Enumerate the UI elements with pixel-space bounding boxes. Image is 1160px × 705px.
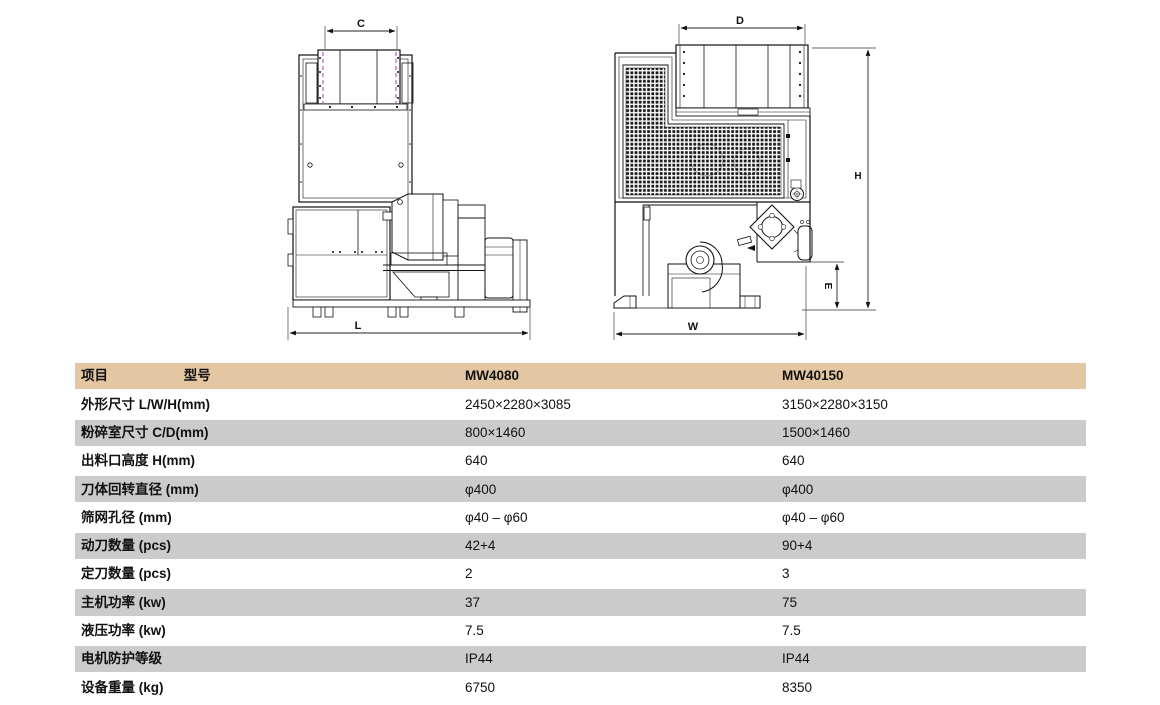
lower-cabinet [288,207,390,300]
row-value-mw4080: 6750 [465,681,782,695]
dimension-h: H [812,48,876,308]
table-row: 动刀数量 (pcs) 42+4 90+4 [75,533,1086,559]
dim-label-d: D [736,15,744,27]
right-strip [786,120,812,260]
hopper [304,50,413,110]
dimension-c: C [325,18,397,49]
front-view-drawing: C [283,14,533,344]
row-label: 外形尺寸 L/W/H(mm) [75,398,465,412]
table-row: 设备重量 (kg) 6750 8350 [75,674,1086,700]
dim-label-c: C [357,18,365,30]
row-value-mw40150: φ400 [782,483,1086,497]
row-label: 刀体回转直径 (mm) [75,483,465,497]
row-value-mw40150: IP44 [782,652,1086,666]
table-row: 定刀数量 (pcs) 2 3 [75,561,1086,587]
row-value-mw4080: IP44 [465,652,782,666]
table-header-row: 项目 型号 MW4080 MW40150 [75,363,1086,389]
row-label: 液压功率 (kw) [75,624,465,638]
datasheet-page: C [0,0,1160,705]
row-value-mw4080: 2 [465,567,782,581]
row-value-mw40150: 640 [782,454,1086,468]
row-value-mw40150: 1500×1460 [782,426,1086,440]
row-value-mw40150: 90+4 [782,539,1086,553]
table-row: 粉碎室尺寸 C/D(mm) 800×1460 1500×1460 [75,420,1086,446]
table-row: 液压功率 (kw) 7.5 7.5 [75,618,1086,644]
dimension-d: D [679,15,805,44]
row-value-mw4080: 42+4 [465,539,782,553]
row-value-mw4080: φ400 [465,483,782,497]
table-row: 刀体回转直径 (mm) φ400 φ400 [75,476,1086,502]
table-row: 筛网孔径 (mm) φ40 – φ60 φ40 – φ60 [75,504,1086,530]
dim-label-e: E [822,283,833,290]
dim-label-h: H [854,171,861,182]
table-row: 电机防护等级 IP44 IP44 [75,646,1086,672]
row-label: 主机功率 (kw) [75,596,465,610]
row-value-mw40150: 8350 [782,681,1086,695]
header-item-model-cell: 项目 型号 [75,369,465,383]
flow-arrow-icon [747,245,755,251]
row-label: 筛网孔径 (mm) [75,511,465,525]
row-value-mw4080: φ40 – φ60 [465,511,782,525]
header-model1: MW4080 [465,369,782,383]
row-value-mw40150: 3 [782,567,1086,581]
row-value-mw40150: 3150×2280×3150 [782,398,1086,412]
table-row: 主机功率 (kw) 37 75 [75,589,1086,615]
row-label: 电机防护等级 [75,652,465,666]
row-value-mw4080: 640 [465,454,782,468]
header-model-label: 型号 [184,368,211,383]
motor [458,205,527,312]
dimension-e: E [802,262,876,310]
table-row: 出料口高度 H(mm) 640 640 [75,448,1086,474]
row-value-mw4080: 800×1460 [465,426,782,440]
machine-base [293,300,530,317]
cutter-housing [383,194,458,260]
dim-label-l: L [355,320,362,332]
dim-label-w: W [688,321,699,333]
spec-table: 项目 型号 MW4080 MW40150 外形尺寸 L/W/H(mm) 2450… [75,363,1086,703]
header-item-label: 项目 [81,368,108,383]
row-value-mw40150: 75 [782,596,1086,610]
row-value-mw4080: 37 [465,596,782,610]
row-label: 出料口高度 H(mm) [75,454,465,468]
row-value-mw4080: 7.5 [465,624,782,638]
row-label: 动刀数量 (pcs) [75,539,465,553]
table-row: 外形尺寸 L/W/H(mm) 2450×2280×3085 3150×2280×… [75,391,1086,417]
row-label: 定刀数量 (pcs) [75,567,465,581]
hopper-side [676,45,810,116]
row-value-mw4080: 2450×2280×3085 [465,398,782,412]
dimension-l: L [288,307,530,340]
header-model2: MW40150 [782,369,1086,383]
row-label: 设备重量 (kg) [75,681,465,695]
row-value-mw40150: φ40 – φ60 [782,511,1086,525]
row-value-mw40150: 7.5 [782,624,1086,638]
side-view-drawing: D [592,12,884,346]
row-label: 粉碎室尺寸 C/D(mm) [75,426,465,440]
